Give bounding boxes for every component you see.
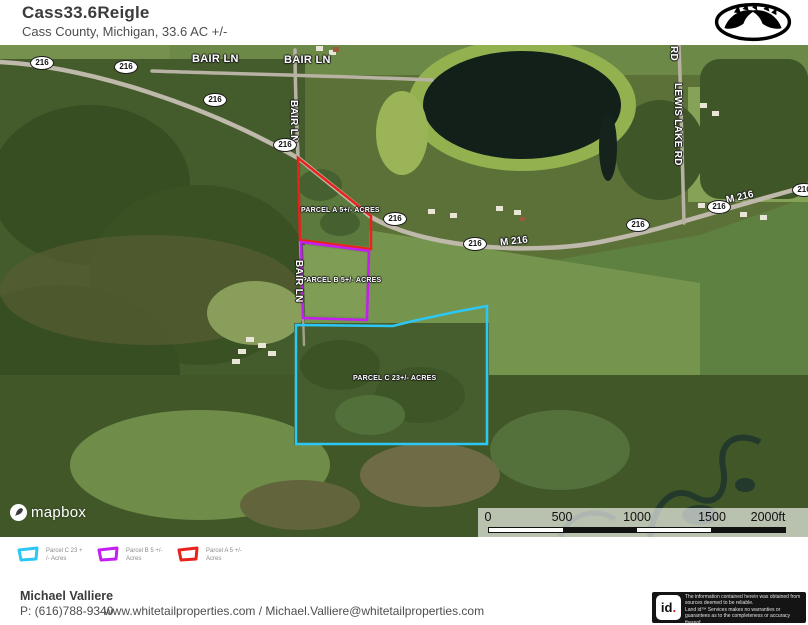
land-id-logo: id. — [656, 595, 681, 620]
property-map-page: Cass33.6Reigle Cass County, Michigan, 33… — [0, 0, 808, 625]
map-viewport[interactable]: PARCEL A 5+/- ACRES PARCEL B 5+/- ACRES … — [0, 45, 808, 537]
scale-bar-segments — [488, 527, 786, 533]
scale-tick: 0 — [485, 510, 492, 524]
parcel-c-label: PARCEL C 23+/- ACRES — [353, 375, 436, 382]
legend-label: Parcel B 5 +/- Acres — [126, 546, 163, 563]
agent-name: Michael Valliere — [20, 589, 113, 603]
legend-label: Parcel C 23 + /- Acres — [46, 546, 83, 563]
whitetail-antler-logo-icon — [714, 2, 792, 47]
legend-item-parcel-c: Parcel C 23 + /- Acres — [16, 546, 83, 563]
route-216-badge: 216 — [383, 212, 407, 226]
disclaimer-text: The information contained herein was obt… — [685, 594, 803, 625]
parcel-c-swatch-icon — [16, 546, 40, 563]
legend-item-parcel-b: Parcel B 5 +/- Acres — [96, 546, 163, 563]
land-id-logo-dot: . — [672, 600, 676, 615]
route-216-badge: 216 — [273, 138, 297, 152]
map-legend: Parcel C 23 + /- Acres Parcel B 5 +/- Ac… — [0, 537, 808, 583]
route-216-badge: 216 — [114, 60, 138, 74]
route-216-badge: 216 — [626, 218, 650, 232]
road-label-bair-ln: BAIR LN — [284, 54, 331, 66]
road-label-bair-ln-vertical: BAIR LN — [288, 100, 299, 143]
mapbox-icon — [10, 504, 27, 521]
legend-label: Parcel A 5 +/- Acres — [206, 546, 242, 563]
route-216-badge: 216 — [203, 93, 227, 107]
road-label-bair-ln-vertical: BAIR LN — [293, 260, 304, 303]
page-title: Cass33.6Reigle — [22, 3, 150, 23]
mapbox-wordmark: mapbox — [31, 504, 86, 521]
header: Cass33.6Reigle Cass County, Michigan, 33… — [0, 0, 808, 45]
parcel-boundaries — [0, 45, 808, 537]
footer: Michael Valliere P: (616)788-9340 www.wh… — [0, 583, 808, 625]
road-label-rd: RD — [668, 46, 679, 61]
website-email-line: www.whitetailproperties.com / Michael.Va… — [104, 604, 484, 618]
parcel-b-swatch-icon — [96, 546, 120, 563]
parcel-a-swatch-icon — [176, 546, 200, 563]
legend-item-parcel-a: Parcel A 5 +/- Acres — [176, 546, 242, 563]
map-scale-bar: 0 500 1000 1500 2000ft — [478, 508, 808, 537]
parcel-a-label: PARCEL A 5+/- ACRES — [301, 207, 380, 214]
agent-phone: P: (616)788-9340 — [20, 604, 113, 618]
road-label-bair-ln: BAIR LN — [192, 53, 239, 65]
page-subtitle: Cass County, Michigan, 33.6 AC +/- — [22, 24, 227, 39]
route-216-badge: 216 — [463, 237, 487, 251]
road-label-lewis-lake-rd: LEWIS LAKE RD — [672, 83, 683, 166]
scale-tick: 2000ft — [751, 510, 786, 524]
scale-tick: 1500 — [698, 510, 726, 524]
scale-tick: 1000 — [623, 510, 651, 524]
scale-tick: 500 — [552, 510, 573, 524]
route-216-badge: 216 — [707, 200, 731, 214]
disclaimer-box: id. The information contained herein was… — [652, 592, 806, 623]
mapbox-attribution[interactable]: mapbox — [10, 504, 86, 521]
parcel-a-outline — [298, 158, 371, 249]
route-216-badge: 216 — [30, 56, 54, 70]
parcel-b-label: PARCEL B 5+/- ACRES — [302, 277, 381, 284]
